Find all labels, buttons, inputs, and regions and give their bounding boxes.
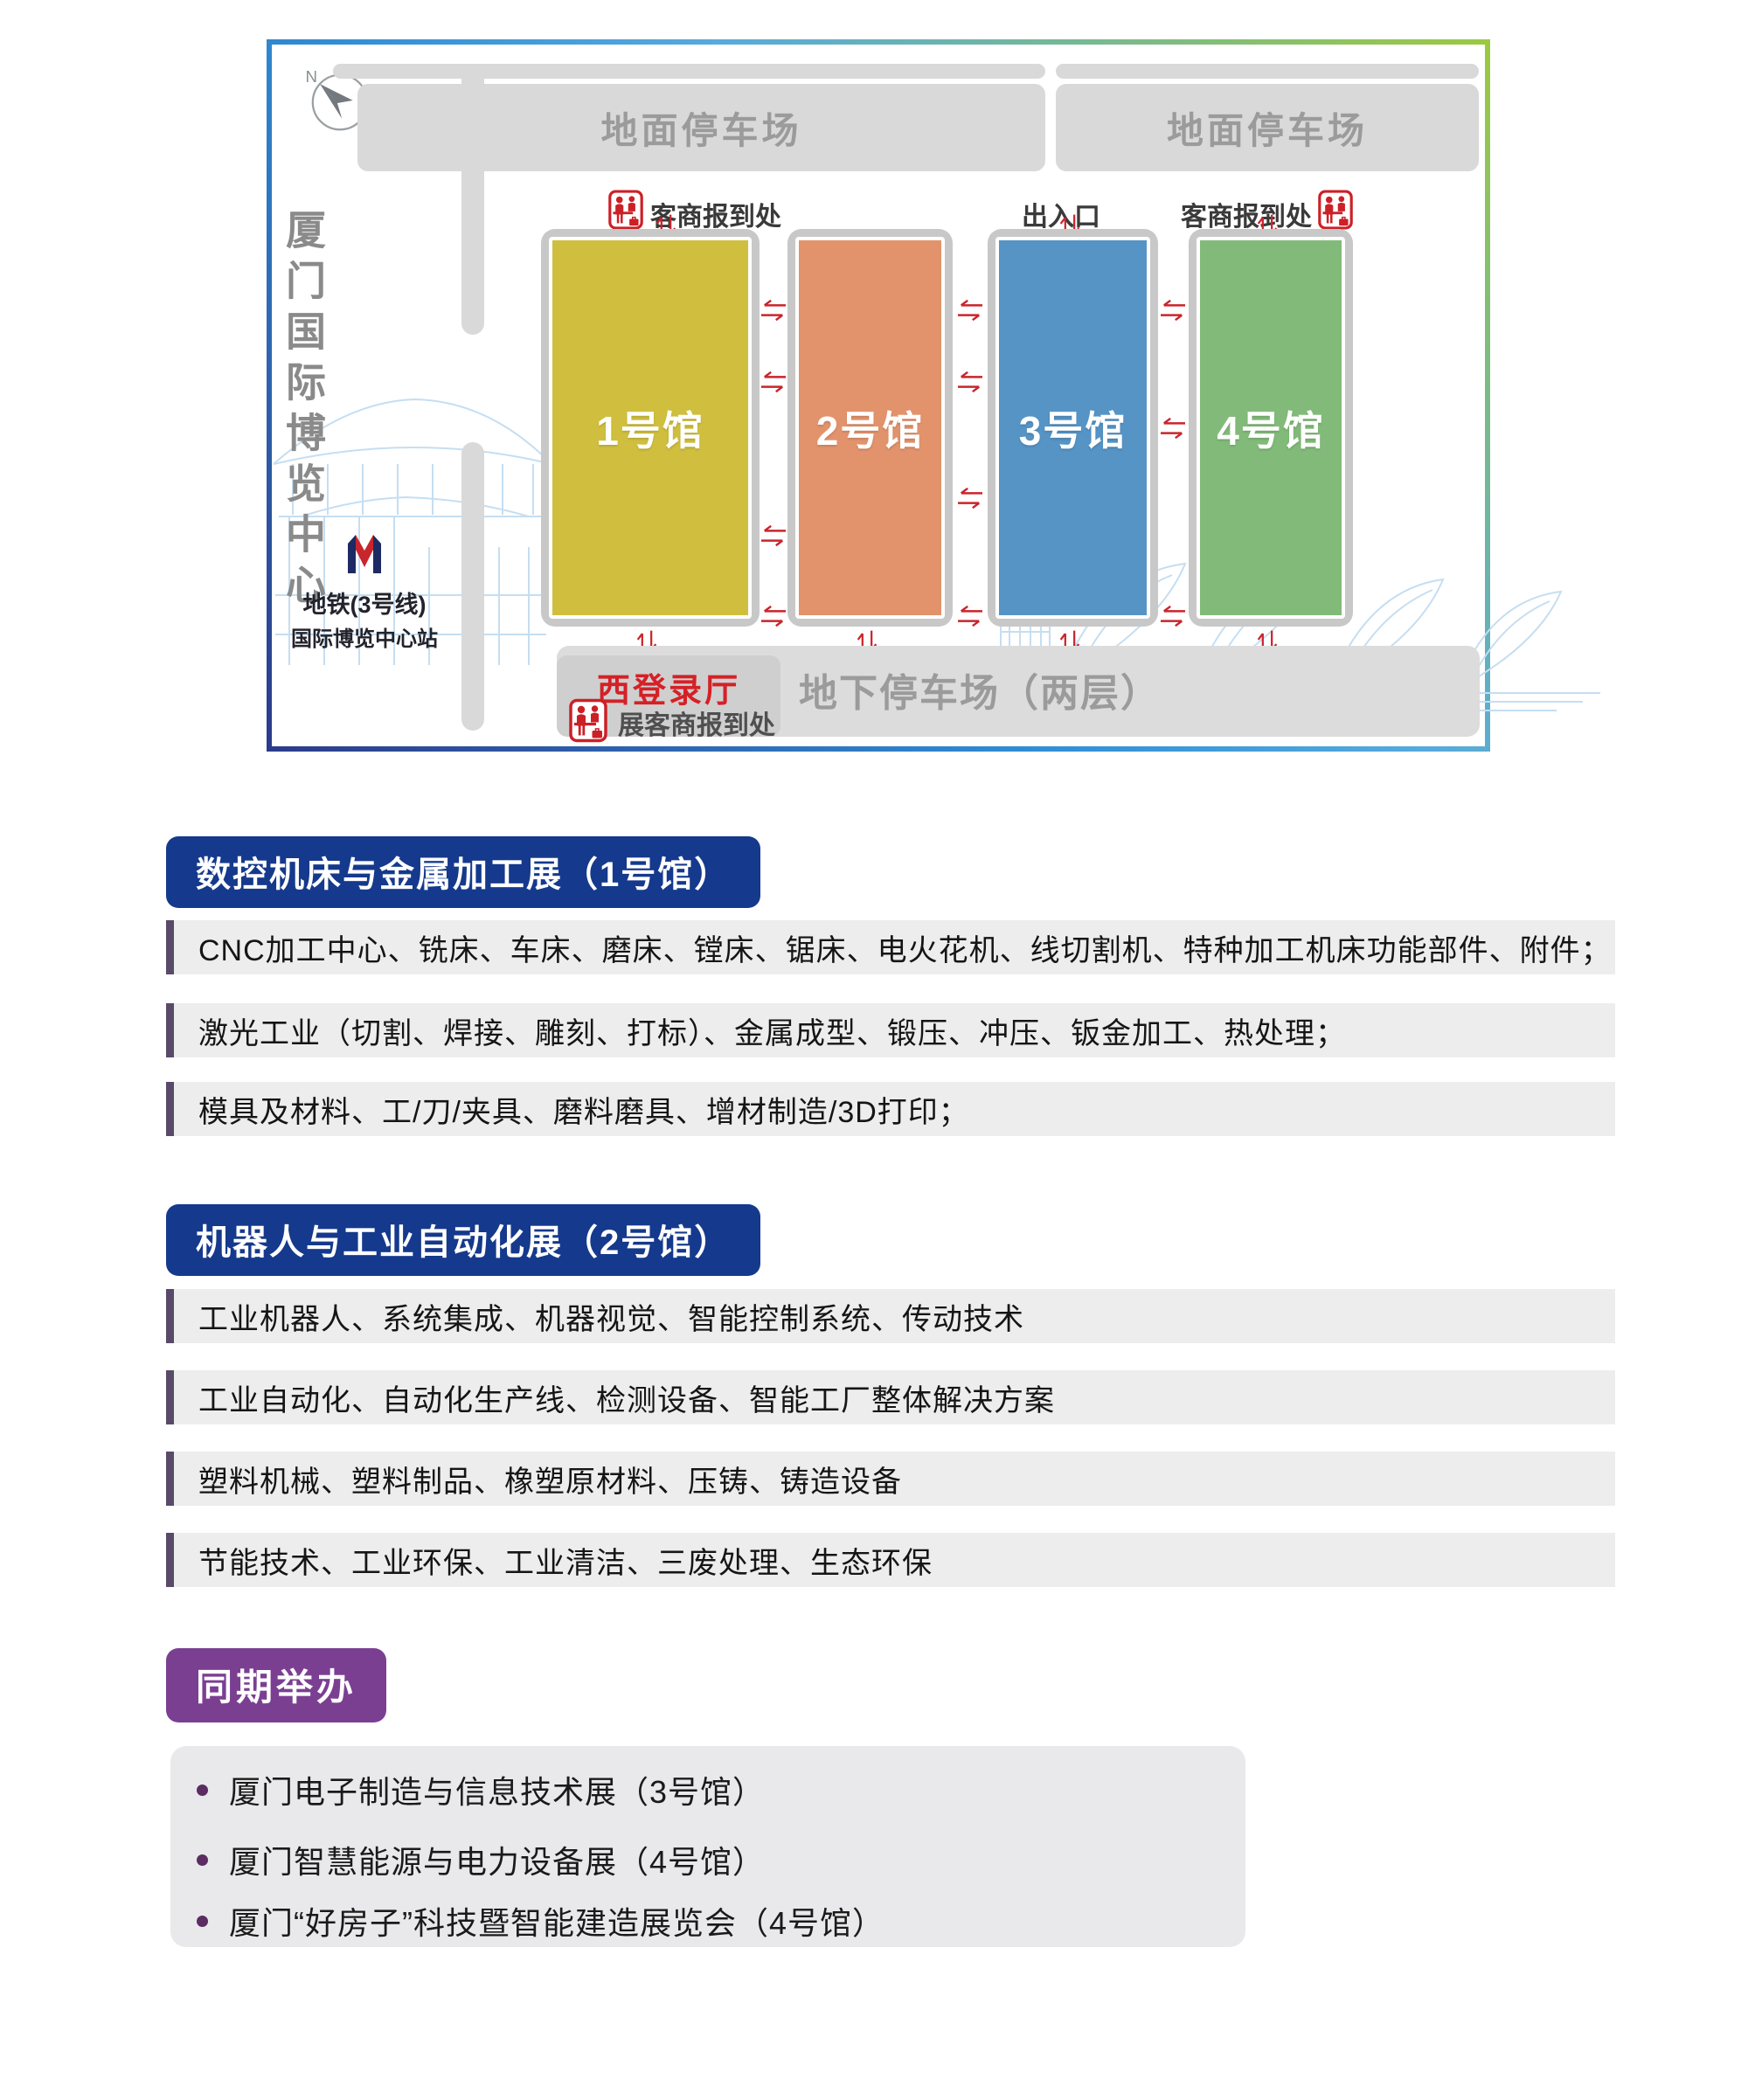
underground-parking-label: 地下停车场（两层）: [761, 662, 1198, 717]
exhibit-scope-text: 工业机器人、系统集成、机器视觉、智能控制系统、传动技术: [174, 1295, 1024, 1338]
exhibit-scope-row: 塑料机械、塑料制品、橡塑原材料、压铸、铸造设备: [166, 1452, 1615, 1506]
hall-1-label: 1号馆: [596, 399, 704, 457]
passage-arrows-icon: [759, 298, 788, 322]
metro-line-label: 地铁(3号线): [275, 586, 454, 620]
hall-1-area: 1号馆: [549, 237, 752, 619]
hall-2-label: 2号馆: [816, 399, 925, 457]
hall-1: 1号馆: [541, 229, 760, 627]
hall-4-label: 4号馆: [1217, 399, 1325, 457]
registration-desk-icon-left: [608, 190, 643, 230]
surface-parking-left-label: 地面停车场: [600, 101, 801, 155]
surface-parking-right-label: 地面停车场: [1167, 101, 1368, 155]
passage-arrows-icon: [955, 604, 985, 628]
metro-station-group: 地铁(3号线) 国际博览中心站: [275, 530, 454, 652]
bullet-icon: [197, 1916, 208, 1927]
passage-arrows-icon: [955, 370, 985, 394]
metro-logo-icon: [343, 530, 385, 578]
concurrent-events-header: 同期举办: [166, 1648, 386, 1722]
metro-station-label: 国际博览中心站: [275, 621, 454, 652]
section-title: 机器人与工业自动化展（2号馆）: [196, 1223, 731, 1262]
exhibit-scope-text: CNC加工中心、铣床、车床、磨床、镗床、锯床、电火花机、线切割机、特种加工机床功…: [174, 926, 1612, 969]
concurrent-title: 同期举办: [196, 1667, 357, 1708]
hall-4: 4号馆: [1189, 229, 1353, 627]
registration-desk-icon-right: [1318, 190, 1353, 230]
exhibit-scope-row: 工业机器人、系统集成、机器视觉、智能控制系统、传动技术: [166, 1289, 1615, 1343]
bullet-icon: [197, 1785, 208, 1796]
concurrent-event-text: 厦门智慧能源与电力设备展（4号馆）: [229, 1837, 765, 1882]
concurrent-event-text: 厦门“好房子”科技暨智能建造展览会（4号馆）: [229, 1898, 884, 1944]
concurrent-event-item: 厦门电子制造与信息技术展（3号馆）: [197, 1772, 765, 1807]
hall-3: 3号馆: [988, 229, 1158, 627]
venue-map: 厦门国际博览中心 地面停车场 地面停车场 客商报到处 出入口 客商报到处: [267, 39, 1490, 752]
passage-arrows-icon: [1158, 416, 1188, 440]
hall-3-area: 3号馆: [995, 237, 1150, 619]
exhibit-scope-row: 模具及材料、工/刀/夹具、磨料磨具、增材制造/3D打印；: [166, 1082, 1615, 1136]
concurrent-event-text: 厦门电子制造与信息技术展（3号馆）: [229, 1767, 765, 1812]
exhibit-scope-text: 工业自动化、自动化生产线、检测设备、智能工厂整体解决方案: [174, 1376, 1055, 1419]
hall-4-area: 4号馆: [1197, 237, 1345, 619]
hall-3-label: 3号馆: [1019, 399, 1127, 457]
passage-arrows-icon: [759, 523, 788, 548]
exhibit-scope-text: 模具及材料、工/刀/夹具、磨料磨具、增材制造/3D打印；: [174, 1088, 969, 1131]
exhibit-scope-row: 工业自动化、自动化生产线、检测设备、智能工厂整体解决方案: [166, 1370, 1615, 1424]
road-left-lower: [461, 442, 484, 731]
registration-desk-icon-west: [569, 698, 607, 743]
passage-arrows-icon: [955, 486, 985, 510]
exhibit-scope-text: 塑料机械、塑料制品、橡塑原材料、压铸、铸造设备: [174, 1458, 902, 1500]
road-top-left: [333, 64, 1045, 79]
passage-arrows-icon: [1158, 298, 1188, 322]
exhibit-scope-row: CNC加工中心、铣床、车床、磨床、镗床、锯床、电火花机、线切割机、特种加工机床功…: [166, 920, 1615, 974]
bullet-icon: [197, 1854, 208, 1866]
concurrent-event-item: 厦门“好房子”科技暨智能建造展览会（4号馆）: [197, 1903, 884, 1938]
passage-arrows-icon: [955, 298, 985, 322]
hall-2-area: 2号馆: [795, 237, 945, 619]
hall-2: 2号馆: [787, 229, 953, 627]
surface-parking-left: 地面停车场: [357, 84, 1045, 171]
exhibit-scope-row: 激光工业（切割、焊接、雕刻、打标）、金属成型、锻压、冲压、钣金加工、热处理；: [166, 1003, 1615, 1057]
passage-arrows-icon: [759, 370, 788, 394]
exhibit-scope-text: 节能技术、工业环保、工业清洁、三废处理、生态环保: [174, 1539, 933, 1582]
exhibit-scope-text: 激光工业（切割、焊接、雕刻、打标）、金属成型、锻压、冲压、钣金加工、热处理；: [174, 1009, 1346, 1052]
passage-arrows-icon: [1158, 604, 1188, 628]
section-header-hall2-expo: 机器人与工业自动化展（2号馆）: [166, 1204, 760, 1276]
surface-parking-right: 地面停车场: [1056, 84, 1479, 171]
road-top-right: [1056, 64, 1479, 79]
concurrent-event-item: 厦门智慧能源与电力设备展（4号馆）: [197, 1842, 765, 1877]
registration-right-label: 客商报到处: [1181, 195, 1312, 233]
west-hall-subtitle: 展客商报到处: [618, 703, 775, 742]
venue-map-canvas: 厦门国际博览中心 地面停车场 地面停车场 客商报到处 出入口 客商报到处: [272, 45, 1485, 746]
section-title: 数控机床与金属加工展（1号馆）: [196, 856, 731, 894]
passage-arrows-icon: [759, 604, 788, 628]
section-header-hall1-expo: 数控机床与金属加工展（1号馆）: [166, 836, 760, 908]
exhibit-scope-row: 节能技术、工业环保、工业清洁、三废处理、生态环保: [166, 1533, 1615, 1587]
flyer-page: 厦门国际博览中心 地面停车场 地面停车场 客商报到处 出入口 客商报到处: [0, 0, 1755, 2100]
